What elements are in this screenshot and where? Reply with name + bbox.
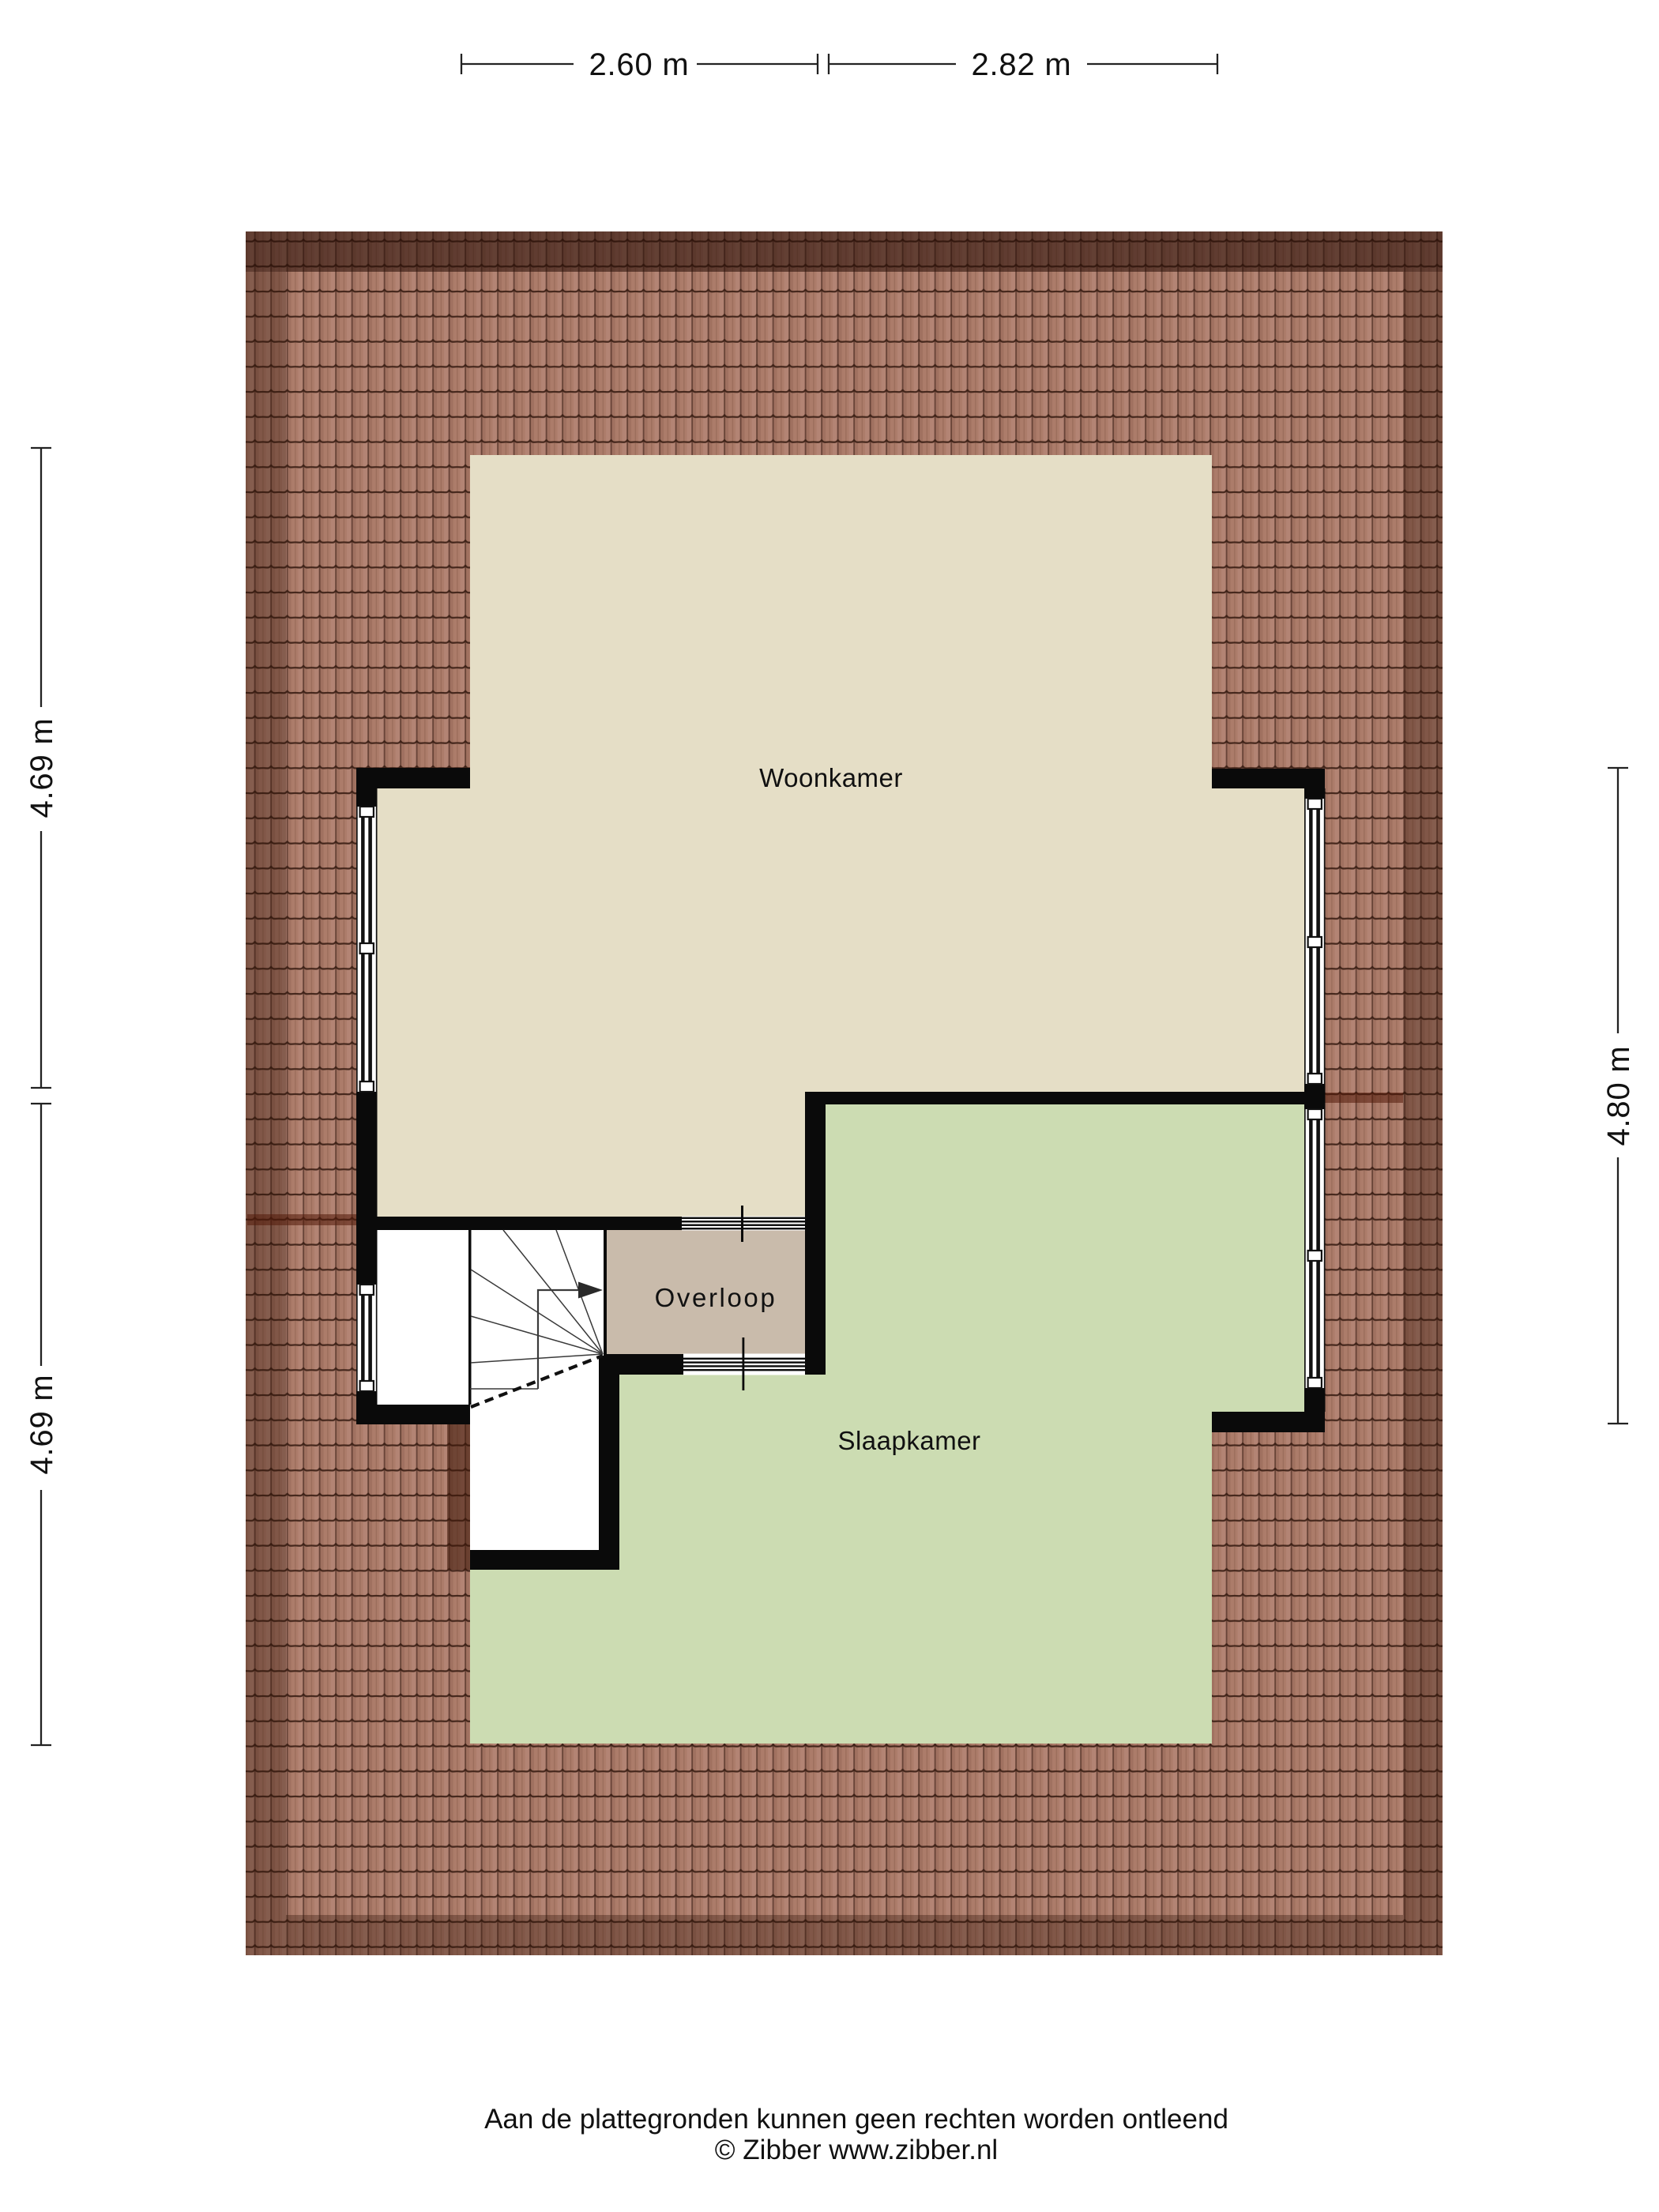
svg-text:4.69 m: 4.69 m xyxy=(24,1374,59,1474)
svg-text:2.60 m: 2.60 m xyxy=(589,47,689,82)
svg-text:© Zibber www.zibber.nl: © Zibber www.zibber.nl xyxy=(715,2135,998,2165)
svg-text:Slaapkamer: Slaapkamer xyxy=(837,1426,980,1455)
svg-text:Aan de plattegronden kunnen ge: Aan de plattegronden kunnen geen rechten… xyxy=(484,2104,1228,2135)
svg-text:Overloop: Overloop xyxy=(655,1283,777,1312)
svg-text:Woonkamer: Woonkamer xyxy=(759,763,903,792)
svg-text:4.80 m: 4.80 m xyxy=(1601,1045,1636,1145)
svg-text:2.82 m: 2.82 m xyxy=(971,47,1071,82)
svg-text:4.69 m: 4.69 m xyxy=(24,717,59,818)
